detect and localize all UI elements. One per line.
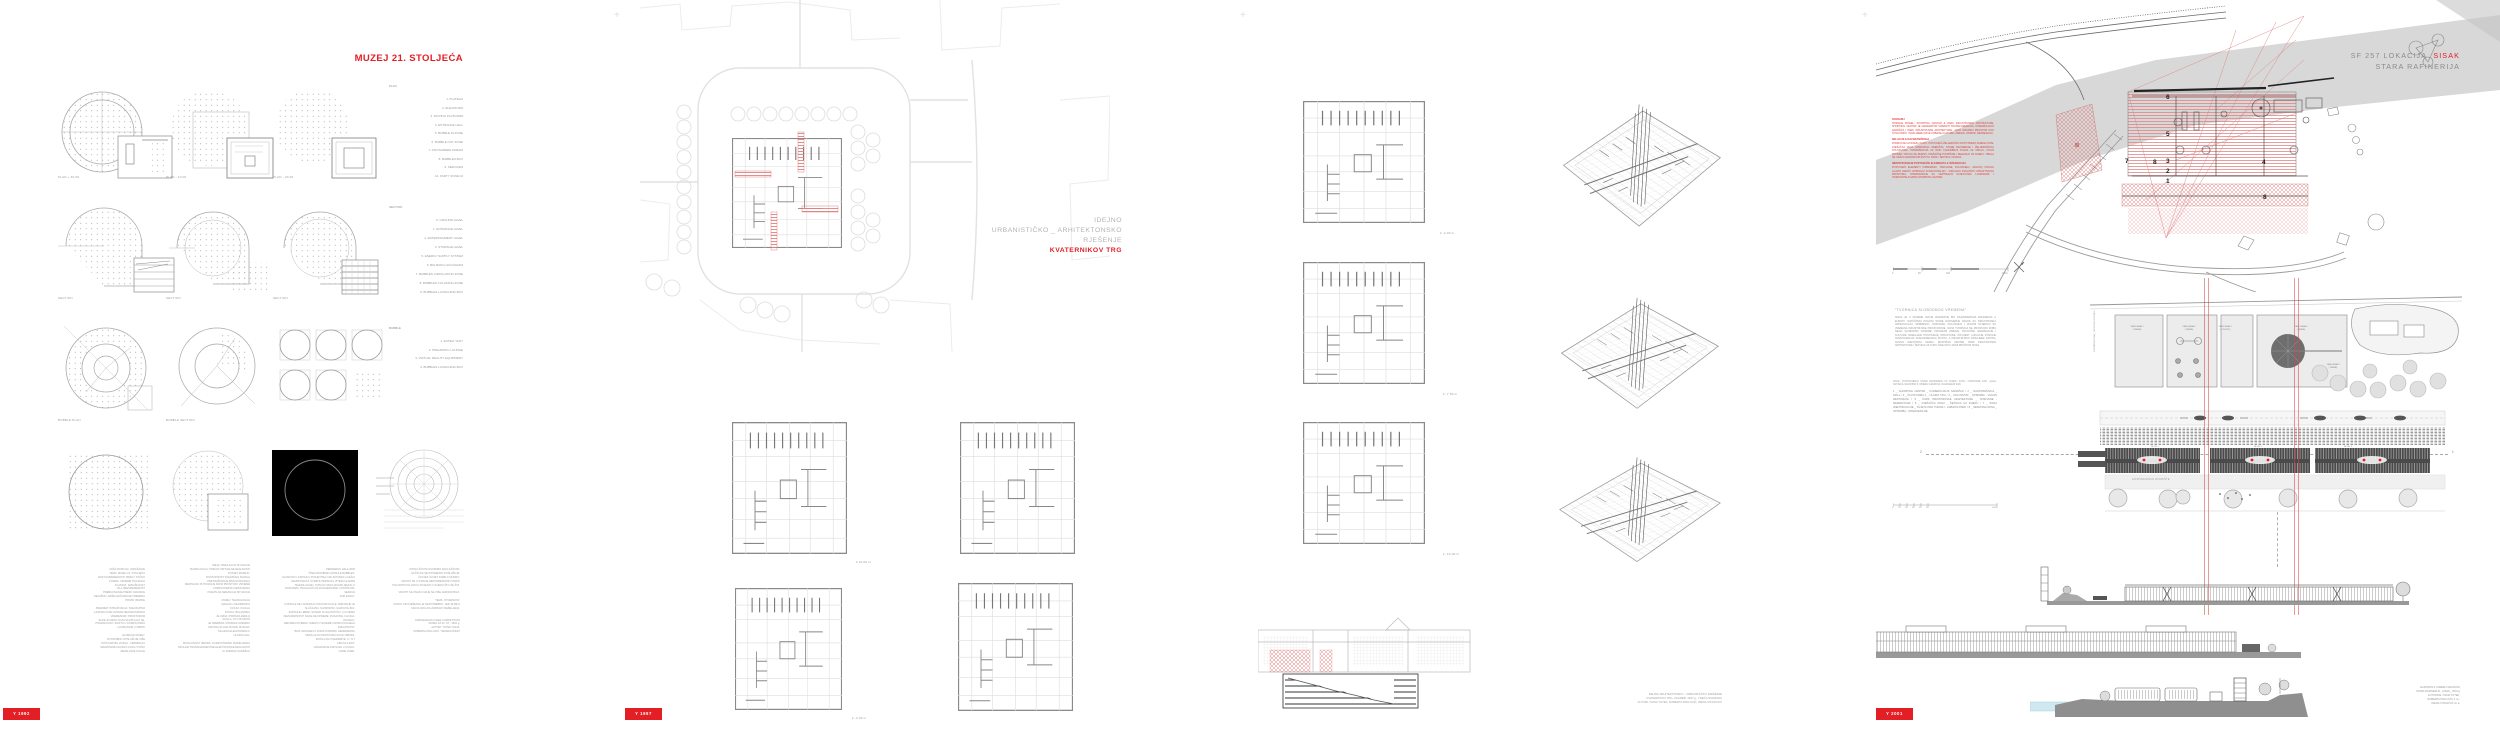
concept-text-col1: NAŠA POZICIJA: ZAPAŽANJE TEMA: MUZEJ 21.… xyxy=(30,568,145,654)
scale-label: 0 xyxy=(1892,507,1893,509)
year-badge-1992: Y 1992 xyxy=(3,708,40,720)
scale-label: 50 xyxy=(1918,272,1921,275)
zone-number: 8 xyxy=(2153,159,2157,166)
zone-number: 6 xyxy=(2166,94,2170,101)
board2-credits: IDEJNO ARHITEKTONSKO - URBANISTIČKO RJEŠ… xyxy=(1540,692,1722,705)
scale-label: 100 xyxy=(1946,272,1950,275)
plan2-caption: PLAN - 10.00 xyxy=(166,175,186,179)
tankvana2-label: TANKVANA 2 (TRAVA) xyxy=(2176,326,2202,332)
year-badge-2001: Y 2001 xyxy=(1876,708,1913,720)
bubble-plan-caption: BUBBLE PLAN xyxy=(58,418,81,422)
section-list-label: SECTION xyxy=(389,205,402,209)
list-item: 8. BUBBLES BOX xyxy=(343,155,463,164)
board3-title-location: SISAK xyxy=(2433,51,2460,60)
floor-plan-c xyxy=(735,588,842,710)
list-item: 1. PLATEAU xyxy=(343,95,463,104)
list-item: 5. BUBBLE IN ZONE xyxy=(343,129,463,138)
plan-list: 1. PLATEAU 2. ELEVATORS 3. MOVING PLATFO… xyxy=(343,95,463,180)
board2-title-line: URBANISTIČKO _ ARHITEKTONSKO xyxy=(940,226,1122,236)
scale-label: 50 xyxy=(1926,507,1928,509)
section3-caption: SECTION xyxy=(273,296,288,300)
zone-number: 7 xyxy=(2125,158,2129,165)
sisak-section-3 xyxy=(2030,672,2310,717)
floor-plan-a xyxy=(732,422,847,554)
axonometric-1 xyxy=(1556,98,1726,250)
registration-mark-icon: + xyxy=(614,10,620,21)
north-arrow-icon xyxy=(2012,260,2026,274)
concept-text-col2: IDEJA: SIMULACIJA SITUACIJE TEHNOLOGIJA:… xyxy=(135,564,250,653)
list-item: 10. PARTY ZONE 02 xyxy=(343,172,463,181)
kvaternik-site-plan xyxy=(640,0,1110,352)
zone-number: 8 xyxy=(2263,194,2267,201)
sisak-section-2 xyxy=(1876,622,2306,664)
section1-caption: SECTION xyxy=(58,296,73,300)
floor-plan-d xyxy=(958,583,1073,711)
concept-text-col3: PERIFERIJU HALA 2000 ČINE PROZIRNE KAPSU… xyxy=(240,568,355,654)
list-item: 4. ENTRANCE HALL xyxy=(343,121,463,130)
concept-text-col4: ISTINU ŽIVOTA IZVODIMO ZAKLJUČKOM. NAČIN… xyxy=(345,568,460,634)
list-item: 2. ELEVATORS xyxy=(343,104,463,113)
list-item: 3. MOVING PLATFORM xyxy=(343,112,463,121)
scale-label: 30 xyxy=(1912,507,1914,509)
board2-title: IDEJNO URBANISTIČKO _ ARHITEKTONSKO RJEŠ… xyxy=(940,216,1122,256)
axonometric-3 xyxy=(1552,452,1726,582)
floor-plan-b xyxy=(960,422,1075,554)
zone-number: 5 xyxy=(2166,131,2170,138)
factory-heading: "TVORNICA SLOBODNOG VREMENA" xyxy=(1895,308,1966,312)
scale-bar-1 xyxy=(1893,264,2015,272)
concept-body: HOMAGE MODEL: SHOPPING CENTAR & PARK IND… xyxy=(1892,122,1994,135)
plan3-caption: PLAN - 20.00 xyxy=(273,175,293,179)
section2-caption: SECTION xyxy=(166,296,181,300)
tankvana4-label: TANKVANA 4 (TRAVA) xyxy=(2288,326,2314,332)
section-cut-label: 2 xyxy=(1920,450,1922,454)
concept-diagram-sphere xyxy=(374,448,470,538)
list-item: 2. PNEUMATIC LOUNGE xyxy=(343,346,463,355)
floor-plan-e xyxy=(1303,101,1425,223)
blok2-label: BLOK 2 xyxy=(2248,446,2268,449)
concept-section: RELACIJE & RAZGRANIČENJA PODRUČJE UZ RIJ… xyxy=(1892,138,1994,159)
concept-diagram-2 xyxy=(166,448,258,538)
scale-label: 10 xyxy=(1898,507,1900,509)
section-list: 0. GROUND LEVEL 1. ENTRANCE LEVEL 2. ENT… xyxy=(343,216,463,297)
concept-body: PODRUČJE UZ RIJEKU KUPU: POSTOJEĆI ŽELJE… xyxy=(1892,142,1994,159)
concept-diagram-1 xyxy=(62,448,154,538)
section-diagram-2 xyxy=(165,204,285,296)
level-caption: k -4.00 m xyxy=(1440,231,1454,235)
zone-number: 1 xyxy=(2166,178,2170,185)
sisak-concept-text: SCENARIJ HOMAGE MODEL: SHOPPING CENTAR &… xyxy=(1892,118,1994,180)
concept-heading: SCENARIJ xyxy=(1892,118,1994,121)
board3-title-prefix: SF 257 LOKACIJA xyxy=(2351,51,2427,60)
list-item: 1. ENTRANCE LEVEL xyxy=(343,225,463,234)
board1-title: MUZEJ 21. STOLJEĆA xyxy=(263,53,463,64)
list-item: 3. VIRTUAL REALITY EQUIPMENT xyxy=(343,354,463,363)
list-item: 7. BUBBLES CIRCULATING ZONE xyxy=(343,270,463,279)
board3-credits: EUROPAN 6: IZMEĐU GRADOVA STARA RAFINERI… xyxy=(2330,686,2460,705)
board3-title-line2: STARA RAFINERIJA xyxy=(2300,62,2460,73)
bubble-section-diagram xyxy=(165,322,285,416)
list-item: 2. ENTERTAINMENT LEVEL xyxy=(343,234,463,243)
blok1-label: BLOK 1 xyxy=(2145,446,2165,449)
concept-section: SCENARIJ HOMAGE MODEL: SHOPPING CENTAR &… xyxy=(1892,118,1994,135)
list-item: 4. BUBBLES LAUNCHING BOX xyxy=(343,363,463,372)
scale-label: 0 xyxy=(1892,272,1893,275)
tankvana5-label: TANKVANA 5 (TRAVA) xyxy=(2320,364,2346,370)
scale-bar-1-labels: 0 50 100 200m xyxy=(1892,272,2016,277)
sisak-section-1 xyxy=(2035,565,2420,610)
board2-title-line: RJEŠENJE xyxy=(940,236,1122,246)
list-item: 7. INFOSCREEN DREAM xyxy=(343,146,463,155)
floor-plan-f xyxy=(1303,262,1425,384)
zone-number: 3 xyxy=(2166,158,2170,165)
legend-note: SISAK: POSTROJENJA STARE RAFINERIJE UZ R… xyxy=(1893,381,1997,387)
blok3-label: BLOK 3 xyxy=(2338,446,2358,449)
zone-number: 2 xyxy=(2166,168,2170,175)
list-item: 8. BUBBLES COLLIDING ZONE xyxy=(343,279,463,288)
board3-title: SF 257 LOKACIJA SISAK STARA RAFINERIJA xyxy=(2300,51,2460,72)
plan1-caption: PLAN + 40.00 xyxy=(58,175,79,179)
list-item: 0. GROUND LEVEL xyxy=(343,216,463,225)
list-item: 1. ENTER / EXIT xyxy=(343,337,463,346)
pjesacka-zona-label: PJEŠAČKA ZONA _ ŠETNICA UZ RIJEKU xyxy=(2094,292,2096,352)
list-item: 5. ENERGY SUPPLY SYSTEM xyxy=(343,252,463,261)
street-elevation-section xyxy=(1258,612,1473,712)
level-caption: k -7.50 m xyxy=(1443,392,1457,396)
section-cut-line-vertical xyxy=(2277,512,2278,567)
list-item: 6. BIG BANG HOLOGRAM xyxy=(343,261,463,270)
scale-label: 100m xyxy=(1992,507,1997,509)
registration-mark-icon: + xyxy=(1862,10,1868,21)
list-item: 6. BUBBLE OUT ZONE xyxy=(343,138,463,147)
concept-heading: RELACIJE & RAZGRANIČENJA xyxy=(1892,138,1994,141)
concept-section: IDENTIFICIRANJE POSTOJEĆIH ELEMENATA & I… xyxy=(1892,162,1994,179)
scale-label: 200m xyxy=(2002,272,2008,275)
concept-diagram-black-cube xyxy=(272,450,358,536)
year-badge-1997: Y 1997 xyxy=(625,708,662,720)
tankvana3-label: TANKVANA 3 (CVIJEĆE) xyxy=(2212,326,2238,332)
scale-label: 20 xyxy=(1905,507,1907,509)
list-item: 4. STORAGE LEVEL xyxy=(343,243,463,252)
dvoriste-label: GOSPODARSKO DVORIŠTE xyxy=(2132,478,2170,481)
bubble-list: 1. ENTER / EXIT 2. PNEUMATIC LOUNGE 3. V… xyxy=(343,337,463,371)
concept-heading: IDENTIFICIRANJE POSTOJEĆIH ELEMENATA & I… xyxy=(1892,162,1994,165)
list-item: 9. BUBBLES LAUNCHING BOX xyxy=(343,288,463,297)
registration-mark-icon: + xyxy=(1240,10,1246,21)
scale-bar-2-labels: 0 10 20 30 40 50 100m xyxy=(1892,507,2012,512)
plan-list-label: PLAN xyxy=(389,84,397,88)
bubble-section-caption: BUBBLE SECTION xyxy=(166,418,195,422)
board2-title-line: IDEJNO xyxy=(940,216,1122,226)
tankvana1-label: TANKVANA 1 (TRAVA) xyxy=(2124,326,2150,332)
level-caption: k ±0.00 m xyxy=(856,560,871,564)
list-item: 9. SERVICES xyxy=(343,163,463,172)
level-caption: k -10.00 m xyxy=(1443,552,1459,556)
axonometric-2 xyxy=(1554,292,1724,430)
board2-title-red: KVATERNIKOV TRG xyxy=(940,246,1122,256)
plan-diagram-2 xyxy=(165,86,285,182)
board3-title-line1: SF 257 LOKACIJA SISAK xyxy=(2300,51,2460,62)
program-legend: 1 _ SHOPPING CENTAR _ KOMERCIJALNI SADRŽ… xyxy=(1893,390,1997,414)
bubble-list-label: BUBBLE xyxy=(389,326,401,330)
zone-number: 4 xyxy=(2262,159,2266,166)
factory-text: SISAK JE U VRIJEME SVOJE IZGRADNJE BIO N… xyxy=(1895,316,1996,348)
presentation-sheet: MUZEJ 21. STOLJEĆA PLAN + 40.00 PLAN - 1… xyxy=(0,0,2500,750)
concept-body: POSTOJEĆI ELEMENTI (SPREMNICI, TANKVANE,… xyxy=(1892,166,1994,179)
scale-label: 40 xyxy=(1919,507,1921,509)
floor-plan-g xyxy=(1303,422,1425,544)
level-caption: k -3.00 m xyxy=(852,716,866,720)
